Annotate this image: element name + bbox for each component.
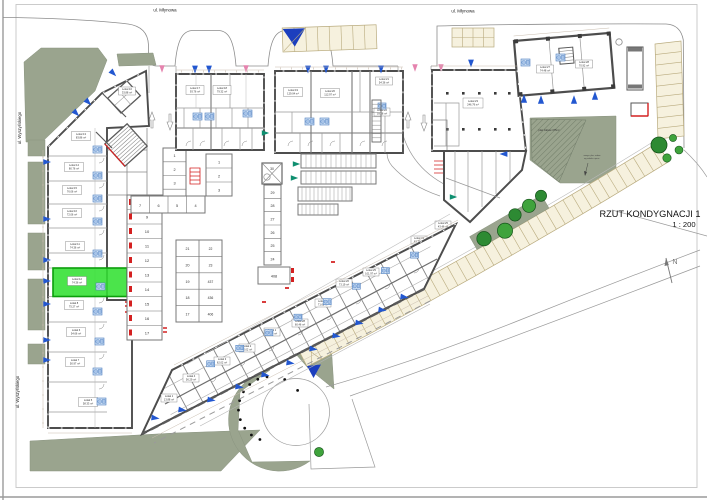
svg-text:15: 15: [145, 302, 150, 307]
svg-text:plac zabaw 475m²: plac zabaw 475m²: [538, 128, 559, 132]
svg-text:17: 17: [186, 313, 190, 317]
svg-text:Lokal 28: Lokal 28: [579, 60, 589, 64]
svg-text:408: 408: [271, 275, 277, 279]
svg-text:ul. Wyszyńskiego: ul. Wyszyńskiego: [17, 111, 22, 144]
svg-text:23: 23: [209, 263, 213, 267]
svg-text:Lokal 11: Lokal 11: [70, 242, 80, 246]
svg-text:Lokal 20: Lokal 20: [325, 89, 335, 93]
svg-text:Lokal 13: Lokal 13: [76, 132, 86, 136]
svg-text:54.66 m²: 54.66 m²: [71, 332, 81, 336]
svg-text:26: 26: [271, 231, 275, 235]
svg-text:1: 1: [218, 161, 220, 165]
svg-text:16: 16: [145, 316, 150, 321]
svg-text:4: 4: [194, 204, 196, 208]
svg-text:56.29 m²: 56.29 m²: [186, 378, 196, 382]
svg-text:112.97 m²: 112.97 m²: [324, 93, 336, 97]
svg-text:1: 1: [173, 154, 175, 158]
svg-text:74.36 m²: 74.36 m²: [72, 281, 82, 285]
svg-text:74.48 m²: 74.48 m²: [540, 69, 550, 73]
svg-text:Lokal 14: Lokal 14: [69, 163, 79, 167]
svg-text:3: 3: [218, 189, 220, 193]
svg-text:6: 6: [157, 204, 159, 208]
svg-text:Lokal 19: Lokal 19: [288, 88, 298, 92]
svg-text:uwaga: plac zabaw: uwaga: plac zabaw: [583, 155, 601, 157]
svg-text:Lokal 17: Lokal 17: [190, 86, 200, 90]
svg-text:19: 19: [186, 280, 190, 284]
svg-text:2: 2: [173, 168, 175, 172]
svg-text:5: 5: [176, 204, 178, 208]
svg-text:83.86 m²: 83.86 m²: [76, 136, 86, 140]
svg-text:76.06 m²: 76.06 m²: [67, 190, 77, 194]
svg-text:101.97 m²: 101.97 m²: [365, 272, 377, 276]
svg-text:ul. Młynowa: ul. Młynowa: [451, 9, 475, 14]
svg-text:Lokal 2: Lokal 2: [243, 344, 252, 348]
svg-text:Lokal 25: Lokal 25: [366, 268, 376, 272]
svg-text:Lokal 18: Lokal 18: [217, 86, 227, 90]
svg-text:12: 12: [145, 258, 150, 263]
svg-text:27: 27: [271, 218, 275, 222]
svg-text:39.28 m²: 39.28 m²: [377, 112, 387, 116]
svg-text:33.88 m²: 33.88 m²: [122, 91, 132, 95]
svg-text:20: 20: [186, 263, 190, 267]
svg-text:1 : 200: 1 : 200: [672, 220, 695, 229]
svg-text:Lokal 27: Lokal 27: [540, 65, 550, 69]
svg-text:Lokal 1: Lokal 1: [165, 394, 174, 398]
svg-text:30: 30: [270, 167, 274, 171]
svg-text:RZUT KONDYGNACJI 1: RZUT KONDYGNACJI 1: [600, 209, 701, 219]
svg-text:Lokal 10: Lokal 10: [122, 87, 132, 91]
svg-text:437: 437: [208, 280, 214, 284]
svg-text:ul. Wyszyńskiego: ul. Wyszyńskiego: [15, 375, 20, 408]
svg-text:2: 2: [218, 175, 220, 179]
svg-text:Lokal 23: Lokal 23: [468, 99, 478, 103]
svg-text:129.04 m²: 129.04 m²: [287, 92, 299, 96]
svg-text:3: 3: [173, 182, 175, 186]
svg-text:Lokal 16: Lokal 16: [67, 209, 77, 213]
svg-text:wg odrebn. oprac.: wg odrebn. oprac.: [584, 158, 600, 160]
svg-text:75.27 m²: 75.27 m²: [69, 305, 79, 309]
svg-text:58.33 m²: 58.33 m²: [83, 402, 93, 406]
svg-text:74.36 m²: 74.36 m²: [70, 246, 80, 250]
svg-text:Lokal 6: Lokal 6: [72, 328, 81, 332]
svg-text:436: 436: [208, 296, 214, 300]
svg-text:22: 22: [209, 247, 213, 251]
svg-text:10: 10: [145, 229, 150, 234]
svg-text:62.02 m²: 62.02 m²: [217, 361, 227, 365]
svg-text:N: N: [672, 257, 677, 266]
svg-text:80.76 m²: 80.76 m²: [69, 167, 79, 171]
svg-text:25: 25: [271, 244, 275, 248]
svg-text:24: 24: [271, 257, 275, 261]
svg-text:28: 28: [271, 204, 275, 208]
svg-text:246.79 m²: 246.79 m²: [467, 103, 479, 107]
svg-text:93.76 m²: 93.76 m²: [190, 90, 200, 94]
svg-text:79.32 m²: 79.32 m²: [217, 90, 227, 94]
svg-text:73.19 m²: 73.19 m²: [339, 283, 349, 287]
svg-text:Lokal 21: Lokal 21: [379, 77, 389, 81]
svg-text:70.92 m²: 70.92 m²: [579, 64, 589, 68]
svg-text:13: 13: [145, 273, 150, 278]
svg-text:13.88 m²: 13.88 m²: [164, 398, 174, 402]
svg-text:Lokal 8: Lokal 8: [70, 301, 79, 305]
svg-text:7: 7: [139, 204, 141, 208]
svg-text:18: 18: [186, 296, 190, 300]
svg-text:Lokal 25: Lokal 25: [438, 221, 448, 225]
svg-text:Lokal 5: Lokal 5: [84, 398, 93, 402]
svg-text:54.36 m²: 54.36 m²: [379, 81, 389, 85]
svg-text:21: 21: [186, 247, 190, 251]
svg-text:29: 29: [271, 191, 275, 195]
svg-text:Lokal 15: Lokal 15: [67, 186, 77, 190]
svg-text:14: 14: [145, 287, 150, 292]
svg-text:Lokal 12: Lokal 12: [72, 277, 82, 281]
svg-text:406: 406: [208, 313, 214, 317]
svg-text:72.06 m²: 72.06 m²: [67, 213, 77, 217]
svg-text:50.97 m²: 50.97 m²: [70, 362, 80, 366]
svg-text:Lokal 4: Lokal 4: [187, 374, 196, 378]
svg-text:60.46 m²: 60.46 m²: [295, 323, 305, 327]
svg-text:ul. Młynowa: ul. Młynowa: [153, 8, 177, 13]
svg-text:17: 17: [145, 331, 150, 336]
svg-text:Lokal 3: Lokal 3: [218, 357, 227, 361]
svg-text:Lokal 7: Lokal 7: [71, 358, 80, 362]
